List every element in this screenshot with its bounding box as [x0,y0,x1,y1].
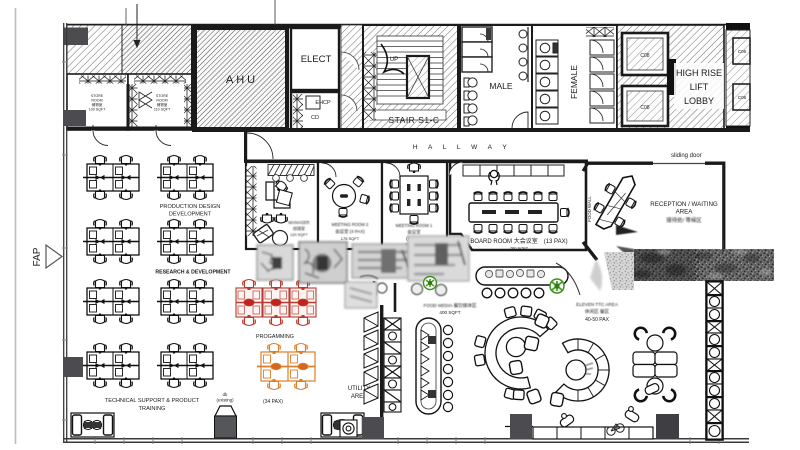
svg-text:RECEPTION / WAITING: RECEPTION / WAITING [650,201,718,208]
svg-text:会议室: 会议室 [407,229,421,236]
svg-text:(existing): (existing) [217,398,235,403]
svg-text:FEMALE: FEMALE [569,65,579,99]
svg-text:40-50 PAX: 40-50 PAX [585,317,609,323]
svg-text:ELEVEN TTC AREA: ELEVEN TTC AREA [576,302,619,307]
svg-text:400 SQFT: 400 SQFT [439,310,460,315]
svg-text:db: db [223,392,228,397]
svg-text:ROOM: ROOM [156,99,167,103]
svg-text:H A L L W A Y: H A L L W A Y [413,144,511,151]
svg-text:AHU: AHU [226,74,258,86]
svg-text:MEETING ROOM 1: MEETING ROOM 1 [396,223,433,228]
svg-text:储物室: 储物室 [157,102,168,107]
svg-text:780 SQFT: 780 SQFT [510,246,529,251]
svg-text:会议室 (4 PAX): 会议室 (4 PAX) [335,228,365,235]
svg-text:MEETING ROOM 2: MEETING ROOM 2 [332,222,369,227]
svg-text:ROOM: ROOM [91,99,102,103]
svg-text:STAIR S1-C: STAIR S1-C [388,115,439,125]
svg-text:STORE: STORE [91,94,104,98]
svg-text:休闲区 餐区: 休闲区 餐区 [585,308,610,315]
svg-text:sliding door: sliding door [671,153,702,159]
svg-text:FOOD WALL: FOOD WALL [587,196,592,222]
svg-text:PRODUCTION DESIGN: PRODUCTION DESIGN [160,204,221,210]
svg-text:CD: CD [311,115,319,121]
svg-text:BOARD ROOM 大会议室 (13 PAX): BOARD ROOM 大会议室 (13 PAX) [470,237,567,245]
svg-text:C06: C06 [738,49,747,54]
svg-text:C08: C08 [640,105,649,111]
svg-text:AREA: AREA [676,209,694,216]
svg-text:STORE: STORE [156,94,169,98]
svg-text:FOOD MEDIA 餐饮媒体区: FOOD MEDIA 餐饮媒体区 [423,302,476,309]
svg-text:TRAINING: TRAINING [139,406,166,412]
svg-text:C06: C06 [738,95,747,100]
svg-text:HIGH RISE: HIGH RISE [676,68,722,78]
svg-text:RESEARCH & DEVELOPMENT: RESEARCH & DEVELOPMENT [155,270,231,276]
svg-text:DEVELOPMENT: DEVELOPMENT [169,212,212,218]
svg-text:ELECT: ELECT [301,54,332,65]
svg-text:110 SQFT: 110 SQFT [154,108,171,112]
svg-text:FAP: FAP [32,247,43,266]
svg-text:175 SQFT: 175 SQFT [341,236,360,241]
svg-text:EHCP: EHCP [315,100,331,106]
svg-text:储物室: 储物室 [92,102,103,107]
svg-text:PROGAMMING: PROGAMMING [256,334,294,340]
svg-text:C08: C08 [640,53,649,59]
svg-text:LIFT: LIFT [690,82,709,92]
svg-text:UP: UP [390,57,398,63]
svg-text:TECHNICAL SUPPORT & PRODUCT: TECHNICAL SUPPORT & PRODUCT [105,398,200,404]
svg-text:经理室: 经理室 [293,225,305,231]
svg-text:MANAGER: MANAGER [288,220,309,225]
svg-text:LOBBY: LOBBY [684,96,714,106]
svg-text:MALE: MALE [489,81,512,91]
svg-text:接待处/ 等候区: 接待处/ 等候区 [666,216,702,224]
svg-text:120 SQFT: 120 SQFT [290,233,308,237]
svg-text:100 SQFT: 100 SQFT [89,108,106,112]
svg-text:(34 PAX): (34 PAX) [263,399,283,405]
